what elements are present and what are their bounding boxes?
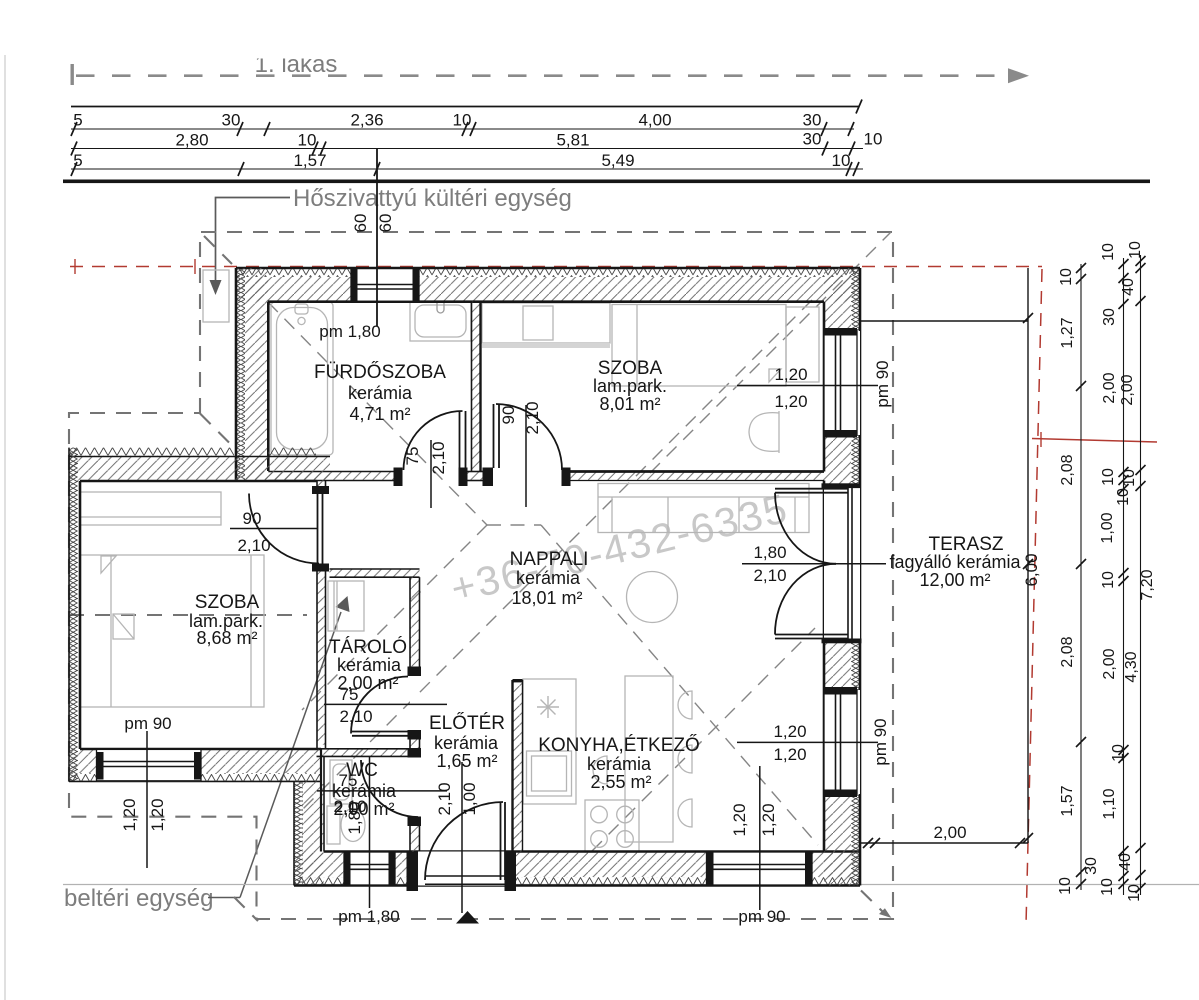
svg-text:4,71 m²: 4,71 m² <box>349 404 410 424</box>
svg-text:8,68 m²: 8,68 m² <box>196 628 257 648</box>
svg-text:30: 30 <box>803 130 822 149</box>
svg-text:kerámia: kerámia <box>587 754 652 774</box>
svg-text:kerámia: kerámia <box>434 733 499 753</box>
svg-text:2,00: 2,00 <box>1101 372 1118 403</box>
svg-text:2,10: 2,10 <box>523 401 542 434</box>
svg-text:2,00: 2,00 <box>933 823 966 842</box>
svg-text:Hőszivattyú kültéri egység: Hőszivattyú kültéri egység <box>293 185 572 212</box>
svg-text:kerámia: kerámia <box>348 383 413 403</box>
svg-text:10: 10 <box>1126 884 1143 902</box>
svg-text:2,10: 2,10 <box>339 707 372 726</box>
svg-text:2,00: 2,00 <box>1119 374 1136 405</box>
svg-text:2,00 m²: 2,00 m² <box>337 673 398 693</box>
svg-text:2,10: 2,10 <box>237 536 270 555</box>
svg-text:kerámia: kerámia <box>516 568 581 588</box>
svg-text:pm 90: pm 90 <box>124 714 171 733</box>
svg-text:WC: WC <box>346 760 378 781</box>
svg-text:NAPPALI: NAPPALI <box>510 549 589 570</box>
svg-text:pm 90: pm 90 <box>873 360 892 407</box>
svg-text:60: 60 <box>376 214 395 233</box>
svg-text:30: 30 <box>222 111 241 130</box>
svg-text:10: 10 <box>298 131 317 150</box>
svg-text:1,65 m²: 1,65 m² <box>436 751 497 771</box>
svg-text:SZOBA: SZOBA <box>195 592 260 613</box>
svg-text:1,20: 1,20 <box>148 798 167 831</box>
svg-text:1,20: 1,20 <box>773 722 806 741</box>
svg-text:1,57: 1,57 <box>1059 785 1076 816</box>
svg-text:pm 90: pm 90 <box>871 718 890 765</box>
svg-text:beltéri egység: beltéri egység <box>64 885 213 912</box>
svg-text:2,10: 2,10 <box>429 441 448 474</box>
svg-text:1,80: 1,80 <box>753 543 786 562</box>
svg-text:60: 60 <box>351 214 370 233</box>
svg-text:1,20: 1,20 <box>774 365 807 384</box>
svg-text:10: 10 <box>864 130 883 149</box>
svg-text:lam.park.: lam.park. <box>593 376 667 396</box>
svg-text:1,20: 1,20 <box>774 392 807 411</box>
svg-text:ELŐTÉR: ELŐTÉR <box>429 712 505 734</box>
svg-text:30: 30 <box>1083 857 1100 875</box>
svg-text:pm 90: pm 90 <box>738 907 785 926</box>
svg-text:1,20: 1,20 <box>773 745 806 764</box>
svg-text:pm 1,80: pm 1,80 <box>338 907 399 926</box>
svg-text:10: 10 <box>1058 268 1075 286</box>
svg-text:10: 10 <box>453 111 472 130</box>
svg-text:40: 40 <box>1117 853 1134 871</box>
svg-text:2,55 m²: 2,55 m² <box>590 772 651 792</box>
svg-text:1,10: 1,10 <box>1101 788 1118 819</box>
svg-text:12,00 m²: 12,00 m² <box>919 570 990 590</box>
svg-text:1,00: 1,00 <box>1099 512 1116 543</box>
svg-text:kerámia: kerámia <box>337 655 402 675</box>
svg-text:4,30: 4,30 <box>1123 651 1140 682</box>
svg-text:FÜRDŐSZOBA: FÜRDŐSZOBA <box>314 361 446 383</box>
svg-text:1,20: 1,20 <box>730 803 749 836</box>
svg-text:6,00: 6,00 <box>1022 553 1041 586</box>
svg-text:10: 10 <box>1099 878 1116 896</box>
svg-text:2,00 m²: 2,00 m² <box>333 799 394 819</box>
svg-text:1,57: 1,57 <box>293 151 326 170</box>
svg-text:90: 90 <box>243 509 262 528</box>
svg-text:pm 1,80: pm 1,80 <box>319 322 380 341</box>
svg-text:2,80: 2,80 <box>175 131 208 150</box>
svg-text:2,08: 2,08 <box>1059 454 1076 485</box>
svg-text:2,36: 2,36 <box>350 111 383 130</box>
svg-text:5,49: 5,49 <box>601 151 634 170</box>
svg-text:5,81: 5,81 <box>556 131 589 150</box>
svg-text:10: 10 <box>1100 571 1117 589</box>
svg-text:10: 10 <box>1127 241 1144 259</box>
svg-text:1,27: 1,27 <box>1059 317 1076 348</box>
svg-text:2,00: 2,00 <box>1101 648 1118 679</box>
svg-text:2,08: 2,08 <box>1059 636 1076 667</box>
svg-text:10: 10 <box>1100 243 1117 261</box>
svg-text:30: 30 <box>1101 308 1118 326</box>
svg-text:1,20: 1,20 <box>120 798 139 831</box>
svg-text:10: 10 <box>1057 877 1074 895</box>
svg-text:18,01 m²: 18,01 m² <box>511 588 582 608</box>
svg-text:2,10: 2,10 <box>435 782 454 815</box>
svg-text:8,01 m²: 8,01 m² <box>599 394 660 414</box>
svg-text:1,00: 1,00 <box>460 782 479 815</box>
svg-text:kerámia: kerámia <box>332 781 397 801</box>
svg-text:5: 5 <box>73 151 82 170</box>
svg-text:fagyálló kerámia: fagyálló kerámia <box>889 552 1021 572</box>
svg-text:30: 30 <box>803 111 822 130</box>
svg-text:10: 10 <box>1110 744 1127 762</box>
svg-text:90: 90 <box>499 406 518 425</box>
svg-text:40: 40 <box>1120 278 1137 296</box>
svg-text:75: 75 <box>403 447 422 466</box>
svg-text:2,10: 2,10 <box>753 566 786 585</box>
svg-text:10: 10 <box>1100 468 1117 486</box>
svg-text:10: 10 <box>832 151 851 170</box>
svg-text:10: 10 <box>1115 488 1132 506</box>
svg-text:KONYHA,ÉTKEZŐ: KONYHA,ÉTKEZŐ <box>538 734 700 756</box>
svg-text:7,20: 7,20 <box>1139 569 1156 600</box>
svg-text:5: 5 <box>73 111 82 130</box>
svg-text:4,00: 4,00 <box>638 111 671 130</box>
svg-text:1,20: 1,20 <box>759 803 778 836</box>
svg-text:10: 10 <box>1121 469 1138 487</box>
